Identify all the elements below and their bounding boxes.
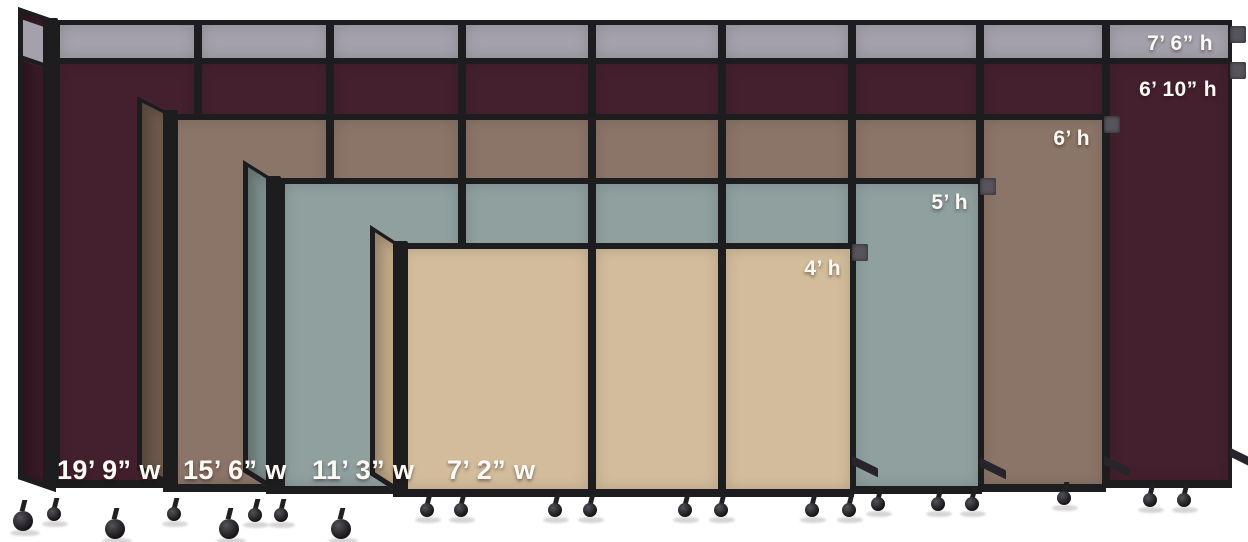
caster-wheel-circle [678, 503, 692, 517]
height-label-6ft10: 6’ 10” h [1139, 78, 1217, 102]
caster-part [449, 517, 475, 523]
caster-part [709, 517, 735, 523]
height-label-6ft: 6’ h [1053, 127, 1090, 151]
caster-part [800, 517, 826, 523]
caster-part [543, 517, 569, 523]
caster-wheel [839, 494, 861, 526]
caster-part [837, 517, 863, 523]
caster-wheel [675, 494, 697, 526]
room-divider-size-comparison-image: 7’ 6” h 6’ 10” h 6’ h 5’ h 4’ h 19’ 9” w… [0, 0, 1248, 542]
caster-wheel [802, 494, 824, 526]
caster-wheel-circle [714, 503, 728, 517]
caster-wheel [580, 494, 602, 526]
caster-wheel [330, 508, 352, 540]
caster-wheel-circle [548, 503, 562, 517]
caster-wheel-circle [420, 503, 434, 517]
caster-part [338, 508, 346, 519]
end-foot-bracket [852, 456, 878, 478]
width-label-11ft3: 11’ 3” w [312, 455, 414, 486]
caster-wheel-circle [842, 503, 856, 517]
caster-wheel [545, 494, 567, 526]
caster-wheel-circle [454, 503, 468, 517]
width-label-15ft6: 15’ 6” w [183, 455, 287, 486]
width-label-7ft2: 7’ 2” w [447, 455, 535, 486]
caster-part [578, 517, 604, 523]
caster-wheel [417, 494, 439, 526]
height-label-5ft: 5’ h [931, 191, 968, 215]
caster-wheel-circle [331, 519, 351, 539]
height-label-7ft6: 7’ 6” h [1147, 32, 1213, 56]
caster-part [328, 538, 358, 542]
height-label-4ft: 4’ h [804, 257, 841, 281]
fabric-panel [596, 249, 718, 489]
fabric-panel [726, 249, 850, 489]
caster-wheel-circle [583, 503, 597, 517]
caster-wheel [451, 494, 473, 526]
hinge-tab [852, 244, 868, 261]
width-label-19ft9: 19’ 9” w [57, 455, 161, 486]
caster-part [415, 517, 441, 523]
caster-part [673, 517, 699, 523]
caster-wheel-circle [805, 503, 819, 517]
caster-wheel [711, 494, 733, 526]
fabric-panel [402, 249, 588, 489]
